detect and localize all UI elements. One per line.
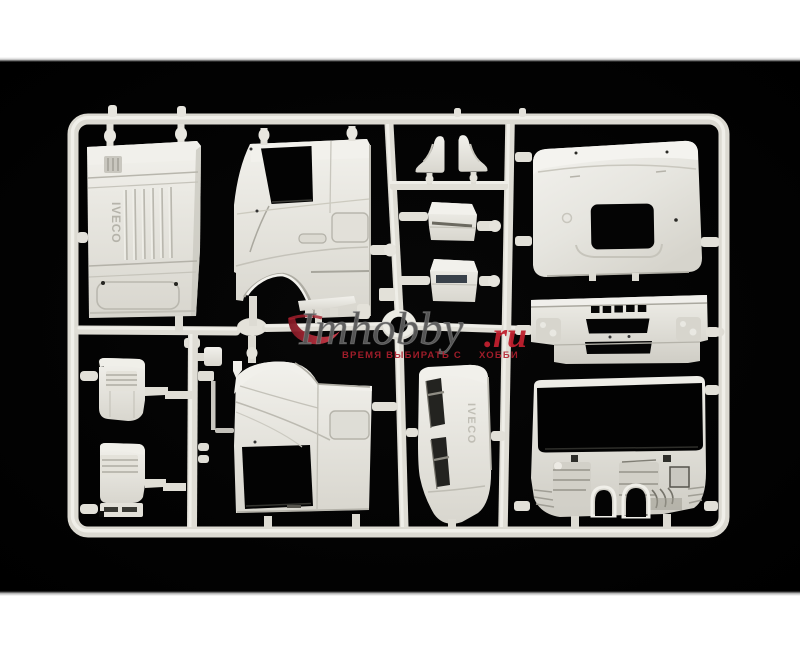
svg-text:ВРЕМЯ ВЫБИРАТЬ С: ВРЕМЯ ВЫБИРАТЬ С [342,350,462,361]
svg-text:Imhobby: Imhobby [298,303,464,355]
svg-text:ХОББИ: ХОББИ [479,350,519,361]
svg-text:.ru: .ru [484,315,527,355]
svg-text:IVECO: IVECO [109,202,123,243]
svg-text:IVECO: IVECO [465,403,477,445]
